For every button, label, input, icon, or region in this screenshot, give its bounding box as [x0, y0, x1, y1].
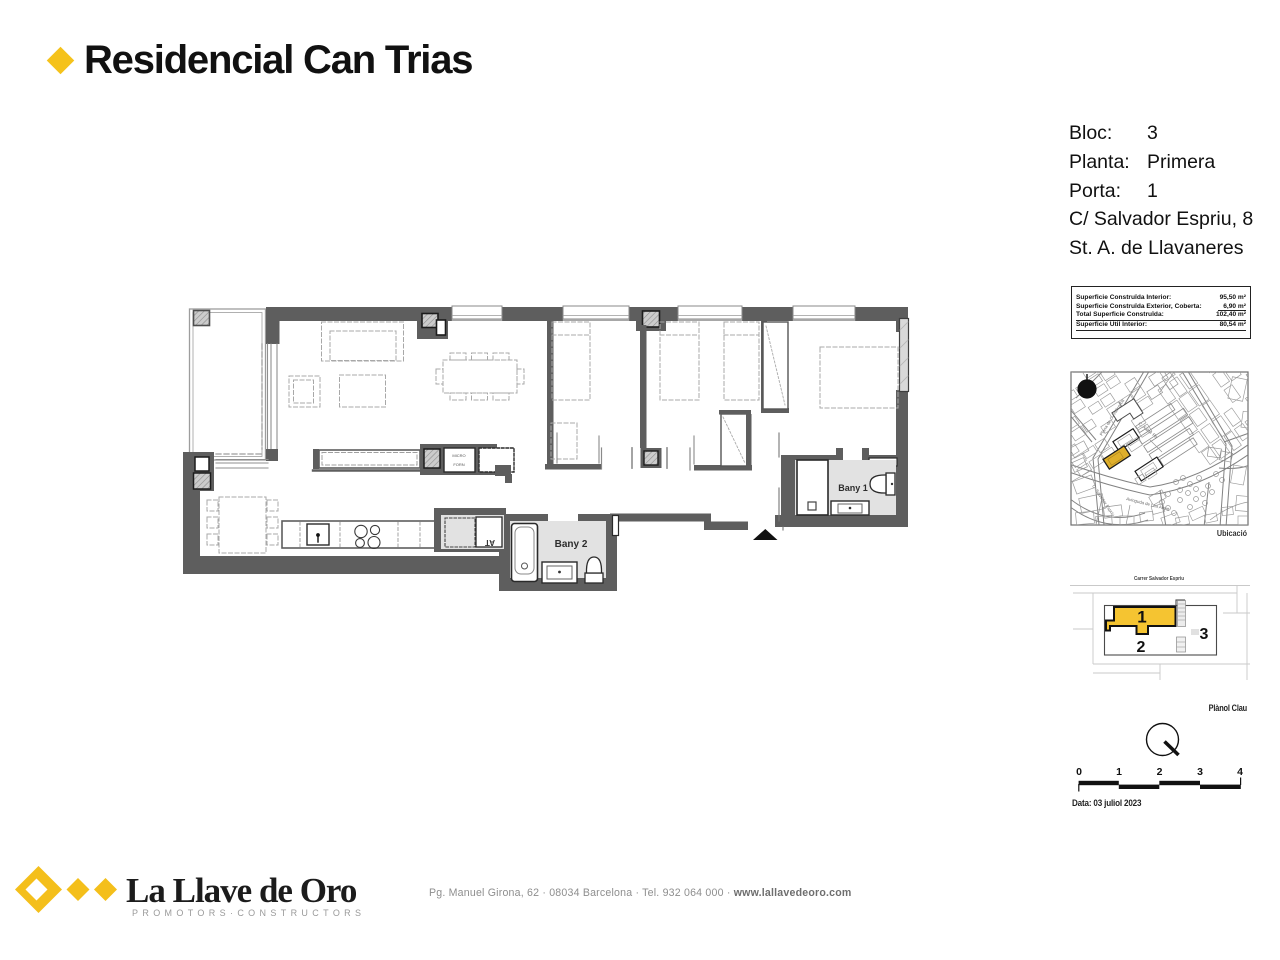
svg-text:4: 4: [1237, 766, 1243, 778]
svg-text:1: 1: [1137, 608, 1146, 627]
svg-text:FORN: FORN: [453, 462, 464, 467]
svg-text:Carrer Salvador Espriu: Carrer Salvador Espriu: [1134, 576, 1184, 582]
svg-text:3: 3: [1197, 766, 1203, 778]
svg-text:1: 1: [1116, 766, 1122, 778]
svg-text:AT: AT: [485, 538, 495, 547]
svg-text:Bany 1: Bany 1: [838, 483, 868, 493]
svg-text:MICRO: MICRO: [452, 453, 465, 458]
svg-text:3: 3: [1200, 626, 1209, 643]
svg-text:Bany 2: Bany 2: [555, 539, 588, 550]
svg-text:0: 0: [1076, 766, 1082, 778]
svg-text:2: 2: [1137, 639, 1146, 656]
svg-text:2: 2: [1157, 766, 1163, 778]
